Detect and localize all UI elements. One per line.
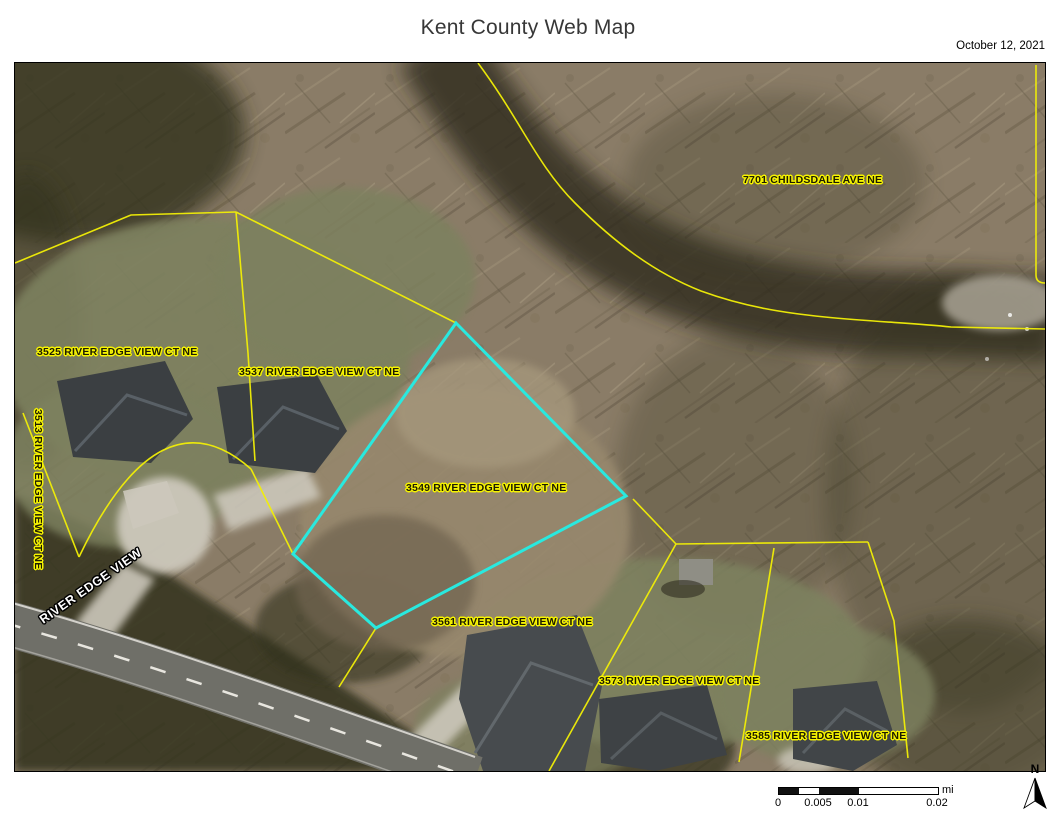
scale-tick: 0.02 xyxy=(926,797,947,809)
map-date: October 12, 2021 xyxy=(956,40,1045,52)
scale-segment xyxy=(779,788,799,794)
north-label: N xyxy=(1016,762,1054,776)
north-arrow-icon xyxy=(1020,776,1050,810)
scale-tick: 0 xyxy=(775,797,781,809)
page: { "page": { "title": "Kent County Web Ma… xyxy=(0,0,1056,816)
parcel-label: 3525 RIVER EDGE VIEW CT NE xyxy=(37,346,197,358)
scale-segment xyxy=(799,788,819,794)
parcel-label: 3549 RIVER EDGE VIEW CT NE xyxy=(406,482,566,494)
scale-segment xyxy=(819,788,859,794)
aerial-imagery xyxy=(15,63,1045,771)
parcel-label: 7701 CHILDSDALE AVE NE xyxy=(743,174,882,186)
parcel-label-vertical: 3513 RIVER EDGE VIEW CT NE xyxy=(32,409,44,569)
parcel-label: 3585 RIVER EDGE VIEW CT NE xyxy=(746,730,906,742)
map-footer: 0 0.005 0.01 0.02 mi N xyxy=(0,770,1056,816)
map-frame: 7701 CHILDSDALE AVE NE 3525 RIVER EDGE V… xyxy=(14,62,1046,772)
scale-tick: 0.005 xyxy=(804,797,832,809)
scale-tick: 0.01 xyxy=(847,797,868,809)
page-title: Kent County Web Map xyxy=(0,16,1056,40)
parcel-label: 3561 RIVER EDGE VIEW CT NE xyxy=(432,616,592,628)
scale-segment xyxy=(859,788,938,794)
scale-unit: mi xyxy=(942,784,954,796)
parcel-label: 3573 RIVER EDGE VIEW CT NE xyxy=(599,675,759,687)
scale-bar xyxy=(778,787,939,795)
north-arrow: N xyxy=(1016,762,1054,816)
parcel-label: 3537 RIVER EDGE VIEW CT NE xyxy=(239,366,399,378)
